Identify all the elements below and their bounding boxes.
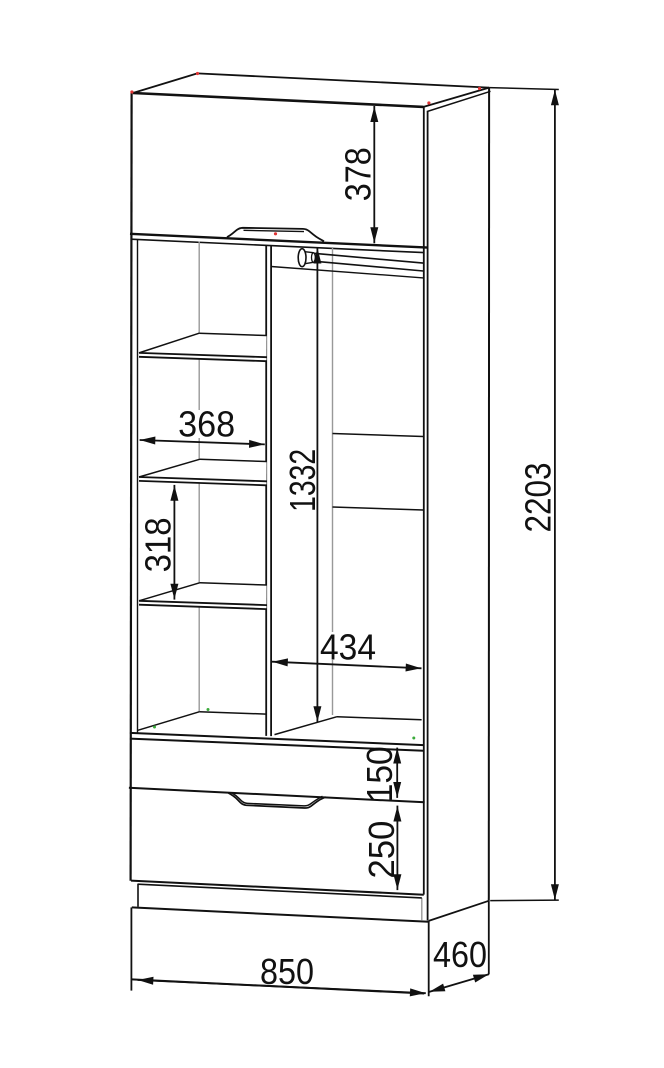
- svg-text:1332: 1332: [282, 449, 323, 512]
- svg-text:318: 318: [137, 517, 178, 572]
- svg-text:250: 250: [361, 821, 402, 879]
- svg-text:460: 460: [433, 934, 487, 975]
- svg-text:434: 434: [320, 626, 376, 667]
- svg-text:150: 150: [359, 746, 400, 802]
- svg-text:368: 368: [178, 403, 235, 444]
- svg-text:2203: 2203: [518, 463, 559, 533]
- svg-text:378: 378: [338, 147, 379, 201]
- svg-text:850: 850: [260, 951, 314, 992]
